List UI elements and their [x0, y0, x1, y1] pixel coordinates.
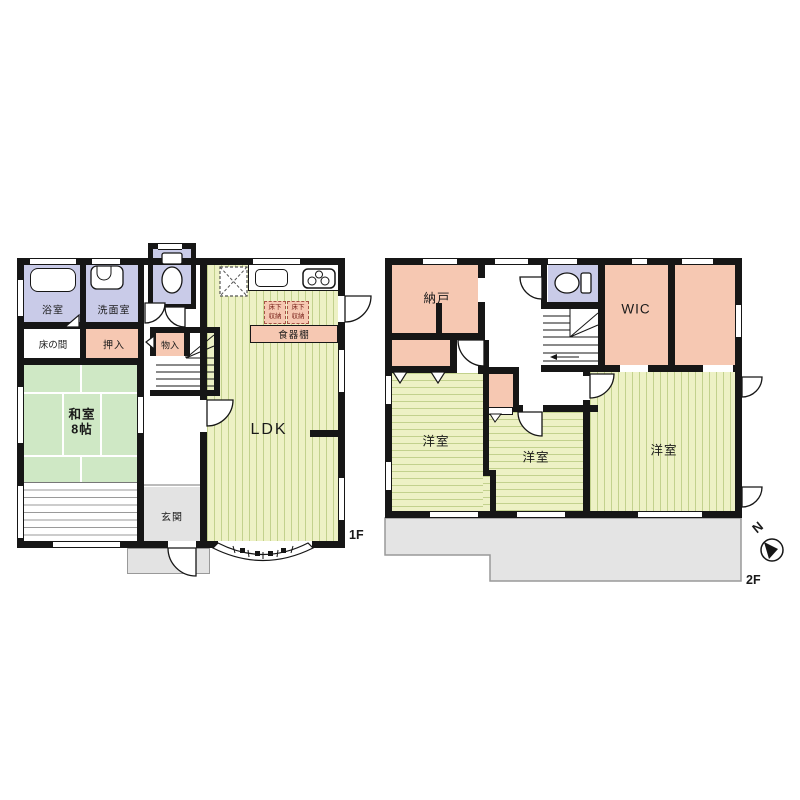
wall [598, 258, 605, 372]
nando-south-closet [392, 340, 450, 366]
wall [583, 372, 590, 376]
floor-plan-canvas: 床下 収納 床下 収納 [0, 0, 800, 800]
floor-2-label: 2F [746, 573, 761, 587]
window [423, 258, 457, 265]
bedroom-left-door-icon [458, 340, 484, 366]
window [385, 462, 392, 490]
hanger-icon [392, 371, 408, 384]
wall [733, 365, 742, 372]
wall [735, 258, 742, 518]
hanger-icon [430, 371, 446, 384]
wall [648, 365, 703, 372]
hanger-icon [489, 414, 502, 423]
outward-door-icon [742, 377, 762, 397]
toilet-icon [552, 271, 594, 296]
window [632, 258, 647, 265]
window [517, 511, 565, 518]
bedroom-right-label: 洋室 [650, 440, 677, 459]
wall [513, 405, 523, 412]
window [495, 258, 528, 265]
bedroom-middle-label: 洋室 [522, 447, 549, 466]
bedroom-left-room-ext [483, 476, 490, 511]
window [548, 258, 577, 265]
wic-label: WIC [621, 302, 650, 317]
middle-closet [488, 374, 513, 407]
wall [541, 302, 605, 309]
bedroom-middle-door-icon [518, 412, 542, 436]
wall [668, 265, 675, 365]
window [430, 511, 478, 518]
stairs-2f-icon [543, 309, 598, 365]
window [735, 305, 742, 337]
floor-2-plan: N 納戸 WIC 洋室 洋室 洋室 2F [0, 0, 800, 800]
window [385, 376, 392, 404]
balcony [385, 518, 742, 584]
window [638, 511, 702, 518]
bedroom-right-door-icon [590, 374, 614, 398]
wall [490, 476, 496, 511]
wall [478, 265, 485, 278]
wall [605, 365, 620, 372]
outward-door-icon [742, 487, 762, 507]
bedroom-left-label: 洋室 [422, 431, 449, 450]
window [682, 258, 713, 265]
wall [583, 400, 590, 511]
wall [385, 333, 485, 340]
toilet-2f-door-icon [520, 277, 542, 299]
nando-label: 納戸 [423, 288, 450, 307]
wall [583, 365, 605, 372]
wall [436, 303, 442, 333]
closet-room-right [675, 265, 735, 365]
